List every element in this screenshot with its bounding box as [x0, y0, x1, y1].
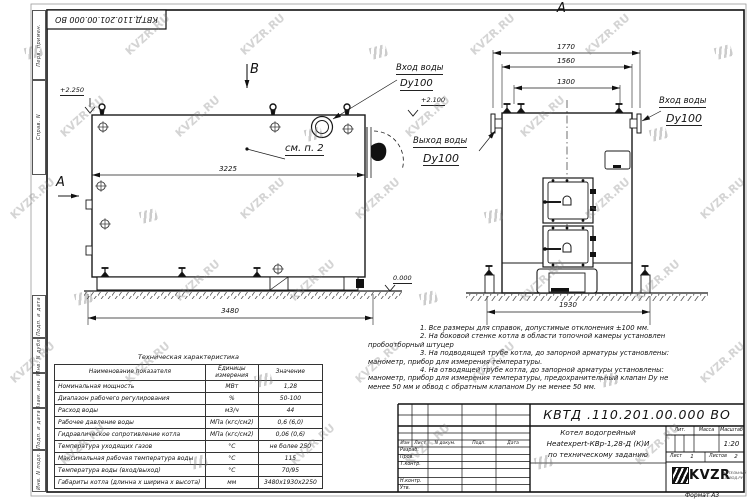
front-water-inlet-label: Вход воды: [659, 97, 706, 108]
spec-cell: °С: [205, 441, 258, 453]
note-line: 1. Все размеры для справок, допустимые о…: [368, 324, 680, 332]
change-table-header-cell: Подп.: [462, 441, 496, 446]
spec-row: Номинальная мощностьМВт1,28: [55, 381, 323, 393]
spec-header-cell: Единицы измерения: [205, 365, 258, 381]
spec-cell: °С: [205, 453, 258, 465]
notes-list: 1. Все размеры для справок, допустимые о…: [368, 324, 680, 391]
spec-cell: Габариты котла (длинна х ширина х высота…: [55, 477, 206, 489]
margin-cell: Подп. и дата: [32, 408, 46, 450]
margin-cell-label: Справ. N: [36, 114, 42, 140]
spec-cell: Номинальная мощность: [55, 381, 206, 393]
margin-cell-label: Инв. N дубл.: [36, 337, 42, 375]
margin-cell-label: Взам. инв. N: [36, 372, 42, 409]
mass-label: Масса: [694, 428, 719, 433]
spec-cell: Рабочее давление воды: [55, 417, 206, 429]
front-view-geometry: [408, 50, 708, 325]
spec-cell: 44: [258, 405, 322, 417]
front-elevation: +2.100: [421, 97, 445, 106]
margin-cell-label: Перв. примен.: [36, 24, 42, 67]
spec-cell: мм: [205, 477, 258, 489]
margin-cell: Справ. N: [32, 80, 46, 175]
spec-cell: Расход воды: [55, 405, 206, 417]
spec-cell: Диапазон рабочего регулирования: [55, 393, 206, 405]
margin-cell: Подп. и дата: [32, 295, 46, 338]
side-water-inlet-dn: Dy100: [400, 79, 433, 91]
kvzr-logo-text: KVZR: [689, 468, 723, 483]
signature-row-label: Разраб.: [400, 448, 427, 453]
note-line: 2. На боковой стенке котла в области топ…: [368, 332, 680, 349]
lit-label: Лит.: [666, 428, 694, 433]
spec-cell: не более 250: [258, 441, 322, 453]
spec-cell: 70/95: [258, 465, 322, 477]
scale-value: 1:20: [719, 440, 744, 448]
change-table-header-cell: Лист: [412, 441, 428, 446]
side-view-label-b: В: [250, 63, 259, 76]
front-dim-1770: 1770: [536, 44, 596, 51]
doc-name-line-3: по техническому заданию: [532, 450, 664, 459]
doc-name-line-1: Котел водогрейный: [532, 428, 664, 437]
spec-row: Расход водым3/ч44: [55, 405, 323, 417]
note-line: 3. На подводящей трубе котла, до запорно…: [368, 349, 680, 366]
sheet-label: Лист: [666, 454, 686, 459]
note-line: 4. На отводящей трубе котла, до запорной…: [368, 366, 680, 391]
spec-cell: Максимальная рабочая температура воды: [55, 453, 206, 465]
spec-table: Наименование показателяЕдиницы измерения…: [54, 364, 323, 489]
spec-cell: 3480х1930х2250: [258, 477, 322, 489]
spec-cell: 1,28: [258, 381, 322, 393]
side-dim-3225: 3225: [198, 166, 258, 173]
side-water-inlet-label: Вход воды: [396, 64, 443, 75]
spec-cell: МВт: [205, 381, 258, 393]
margin-cell: Перв. примен.: [32, 10, 46, 80]
signature-row-label: Утв.: [400, 486, 427, 491]
format-note: Формат А3: [685, 493, 719, 499]
spec-cell: 115: [258, 453, 322, 465]
change-table-header-cell: Дата: [496, 441, 530, 446]
front-view-label-a: А: [557, 2, 566, 15]
side-view-geometry: [58, 64, 403, 325]
spec-header-cell: Значение: [258, 365, 322, 381]
title-block-designation: КВТД .110.201.00.000 ВО: [534, 407, 740, 422]
logo-subtext-1: КОТЕЛЬНЫЙ: [723, 471, 744, 475]
margin-cell: Взам. инв. N: [32, 373, 46, 408]
sheets-label: Листов: [706, 454, 730, 459]
margin-cell-label: Подп. и дата: [36, 297, 42, 336]
margin-cell: Инв. N дубл.: [32, 338, 46, 373]
spec-header-cell: Наименование показателя: [55, 365, 206, 381]
signature-row-label: Н.контр.: [400, 479, 427, 484]
spec-table-body: Наименование показателяЕдиницы измерения…: [55, 365, 323, 489]
scale-label: Масштаб: [719, 428, 744, 433]
side-callout-see-item-2: см. п. 2: [285, 144, 324, 156]
change-table-header-cell: Изм: [398, 441, 412, 446]
kvzr-logo-icon: [672, 467, 689, 484]
side-elevation-ground: 0.000: [393, 275, 412, 284]
spec-cell: м3/ч: [205, 405, 258, 417]
spec-row: Температура воды (вход/выход)°С70/95: [55, 465, 323, 477]
spec-cell: 0,6 (6,0): [258, 417, 322, 429]
spec-row: Рабочее давление водыМПа (кгс/см2)0,6 (6…: [55, 417, 323, 429]
spec-cell: °С: [205, 465, 258, 477]
spec-cell: %: [205, 393, 258, 405]
spec-cell: Температура уходящих газов: [55, 441, 206, 453]
spec-row: Температура уходящих газов°Сне более 250: [55, 441, 323, 453]
front-water-inlet-dn: Dy100: [666, 113, 702, 126]
signature-row-label: Т.контр.: [400, 462, 427, 467]
front-dim-1300: 1300: [536, 79, 596, 86]
margin-cell-label: Инв. N подл.: [36, 452, 42, 490]
spec-cell: МПа (кгс/см2): [205, 417, 258, 429]
spec-row: Диапазон рабочего регулирования%50-100: [55, 393, 323, 405]
sheets-value: 2: [731, 454, 741, 460]
front-water-outlet-dn: Dy100: [423, 153, 459, 166]
logo-subtext-2: ЗАВОД.РУ: [723, 476, 744, 480]
spec-cell: 0,06 (0,6): [258, 429, 322, 441]
front-water-outlet-label: Выход воды: [413, 137, 467, 148]
front-dim-1930: 1930: [538, 302, 598, 309]
top-designation-rotated: КВТД.110.201.00.000 ВО: [47, 10, 166, 29]
front-dim-1560: 1560: [536, 58, 596, 65]
drawing-sheet: КВТД.110.201.00.000 ВО +2.250 В А 3225 3…: [0, 0, 750, 500]
side-dim-3480: 3480: [200, 308, 260, 315]
margin-cell-label: Подп. и дата: [36, 410, 42, 449]
spec-cell: Температура воды (вход/выход): [55, 465, 206, 477]
spec-row: Габариты котла (длинна х ширина х высота…: [55, 477, 323, 489]
doc-name-line-2: Heatexpert-КВр-1,28-Д (К)И: [532, 439, 664, 448]
spec-cell: 50-100: [258, 393, 322, 405]
change-table-header-cell: N докум.: [428, 441, 462, 446]
margin-cell: Инв. N подл.: [32, 450, 46, 492]
spec-cell: Гидравлическое сопротивление котла: [55, 429, 206, 441]
spec-row: Гидравлическое сопротивление котлаМПа (к…: [55, 429, 323, 441]
side-section-label-a: А: [56, 176, 65, 189]
spec-row: Максимальная рабочая температура воды°С1…: [55, 453, 323, 465]
sheet-value: 1: [686, 454, 698, 460]
spec-cell: МПа (кгс/см2): [205, 429, 258, 441]
signature-row-label: Пров.: [400, 455, 427, 460]
spec-table-title: Техническая характеристика: [54, 354, 323, 361]
side-elevation-top: +2.250: [60, 87, 84, 96]
